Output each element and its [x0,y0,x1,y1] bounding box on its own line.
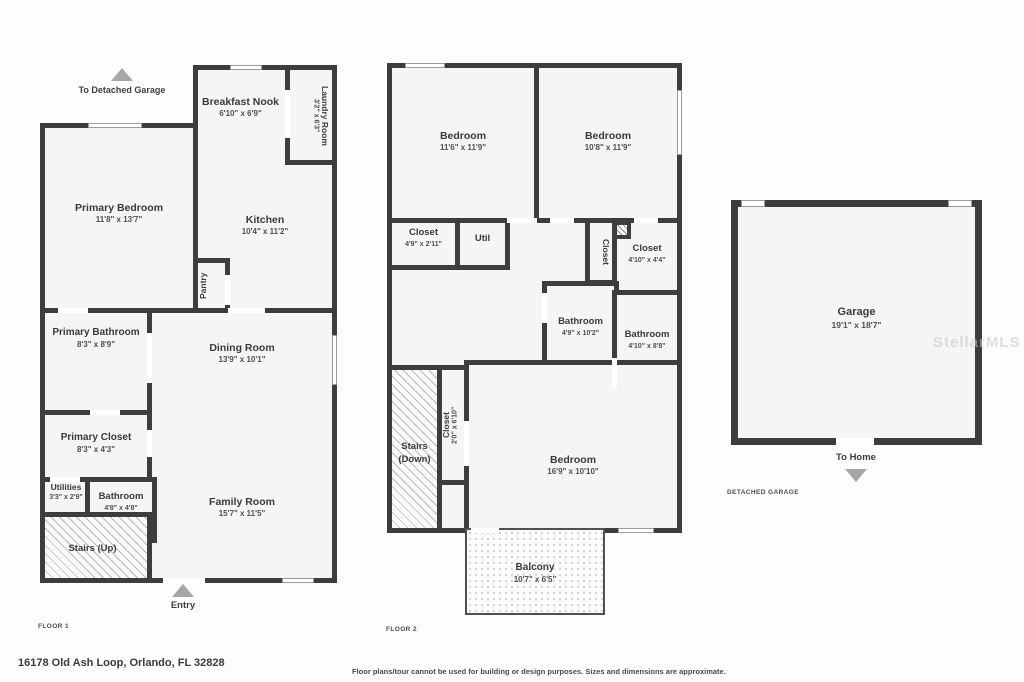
to-home-label: To Home [806,452,906,463]
window [88,123,142,128]
label-closet-d: Closet 2'0" x 6'10" [441,385,465,465]
room-name: Kitchen [193,213,337,227]
label-dining-room: Dining Room 13'9" x 10'1" [147,341,337,366]
room-name: Family Room [147,495,337,509]
room-dims: 10'8" x 11'9" [534,143,682,154]
label-garage: Garage 19'1" x 18'7" [731,305,982,331]
room-dims: 6'10" x 6'9" [193,109,288,120]
room-dims: 4'10" x 8'8" [612,342,682,351]
garage-door-opening [836,438,874,445]
room-dims: 10'7" x 6'5" [465,575,605,586]
door-opening [225,275,230,305]
room-name: Breakfast Nook [193,95,288,109]
label-stairs-up: Stairs (Up) [40,543,145,556]
room-dims: 11'8" x 13'7" [40,215,198,226]
room-name: Stairs (Down) [387,441,442,467]
entry-label: Entry [153,600,213,611]
window [618,528,654,533]
room-dims: 3'2" x 6'3" [311,75,320,157]
room-name: Bathroom [612,329,682,342]
room-dims: 8'3" x 8'9" [40,340,152,351]
door-opening [634,218,658,223]
label-bathroom-b: Bathroom 4'10" x 8'8" [612,329,682,351]
label-family-room: Family Room 15'7" x 11'5" [147,495,337,520]
room-name: Bedroom [464,453,682,467]
room-name: Bedroom [534,129,682,143]
label-bedroom-right: Bedroom 10'8" x 11'9" [534,129,682,154]
window [405,63,445,68]
property-address: 16178 Old Ash Loop, Orlando, FL 32828 [18,657,225,669]
room-dims: 8'3" x 4'3" [40,445,152,456]
label-laundry: Laundry Room 3'2" x 6'3" [292,75,330,157]
door-opening [612,358,617,388]
floor1-tag: FLOOR 1 [38,623,69,630]
door-opening [90,410,120,415]
watermark: StellarMLS [933,334,1021,351]
window [741,200,765,207]
label-bathroom-a: Bathroom 4'9" x 10'2" [542,316,619,338]
room-name: Garage [731,305,982,320]
room-name: Closet [612,243,682,256]
label-bedroom-left: Bedroom 11'6" x 11'9" [387,129,539,154]
floor2-plan: Bedroom 11'6" x 11'9" Bedroom 10'8" x 11… [387,63,682,623]
label-balcony: Balcony 10'7" x 6'5" [465,561,605,585]
room-dims: 13'9" x 10'1" [147,355,337,366]
room-dims: 15'7" x 11'5" [147,509,337,520]
label-closet-a: Closet 4'9" x 2'11" [387,227,460,249]
disclaimer-text: Floor plans/tour cannot be used for buil… [352,667,726,676]
room-name: Bathroom [542,316,619,329]
floor2-tag: FLOOR 2 [386,626,417,633]
to-home-arrow-icon [845,469,867,482]
floorplan-canvas: Breakfast Nook 6'10" x 6'9" Laundry Room… [0,0,1024,682]
label-closet-c: Closet 4'10" x 4'4" [612,243,682,265]
room-name: Closet [441,385,452,465]
room-dims: 11'6" x 11'9" [387,143,539,154]
room-dims: 4'10" x 4'4" [612,256,682,265]
room-name: Dining Room [147,341,337,355]
garage-plan: Garage 19'1" x 18'7" To Home DETACHED GA… [731,200,982,510]
room-bedroom-big [464,360,682,533]
room-dims: 19'1" x 18'7" [731,320,982,331]
room-dims: 2'0" x 6'10" [452,385,461,465]
door-opening [228,308,265,313]
door-opening [507,218,537,223]
label-stairs-down: Stairs (Down) [387,441,442,467]
room-name: Util [455,233,510,246]
room-dims: 4'9" x 2'11" [387,240,460,249]
to-garage-arrow-icon [111,68,133,81]
window [948,200,972,207]
entry-opening [163,578,205,583]
label-kitchen: Kitchen 10'4" x 11'2" [193,213,337,238]
balcony-door-opening [471,528,499,533]
label-primary-bedroom: Primary Bedroom 11'8" x 13'7" [40,201,198,226]
window [230,65,262,70]
room-name: Pantry [198,263,209,309]
label-closet-b: Closet [591,223,611,281]
label-util: Util [455,233,510,246]
room-name: Balcony [465,561,605,575]
floor1-plan: Breakfast Nook 6'10" x 6'9" Laundry Room… [40,65,337,625]
room-name: Primary Bedroom [40,201,198,215]
room-primary-bathroom [40,308,152,415]
door-opening [58,308,88,313]
room-dims: 4'9" x 10'2" [542,329,619,338]
to-garage-label: To Detached Garage [72,85,172,95]
detached-garage-tag: DETACHED GARAGE [727,489,799,496]
room-dims: 10'4" x 11'2" [193,227,337,238]
label-breakfast-nook: Breakfast Nook 6'10" x 6'9" [193,95,288,120]
label-pantry: Pantry [198,263,214,309]
room-name: Primary Closet [40,431,152,445]
entry-arrow-icon [172,584,194,597]
room-name: Stairs (Up) [40,543,145,556]
door-opening [550,218,574,223]
label-bedroom-big: Bedroom 16'9" x 10'10" [464,453,682,478]
label-primary-bathroom: Primary Bathroom 8'3" x 8'9" [40,326,152,350]
room-dims: 16'9" x 10'10" [464,467,682,478]
room-name: Closet [387,227,460,240]
room-name: Bedroom [387,129,539,143]
window [282,578,314,583]
room-name: Laundry Room [319,75,330,157]
label-primary-closet: Primary Closet 8'3" x 4'3" [40,431,152,455]
room-name: Closet [600,223,611,281]
room-name: Primary Bathroom [40,326,152,340]
chase-hatch [613,221,631,239]
